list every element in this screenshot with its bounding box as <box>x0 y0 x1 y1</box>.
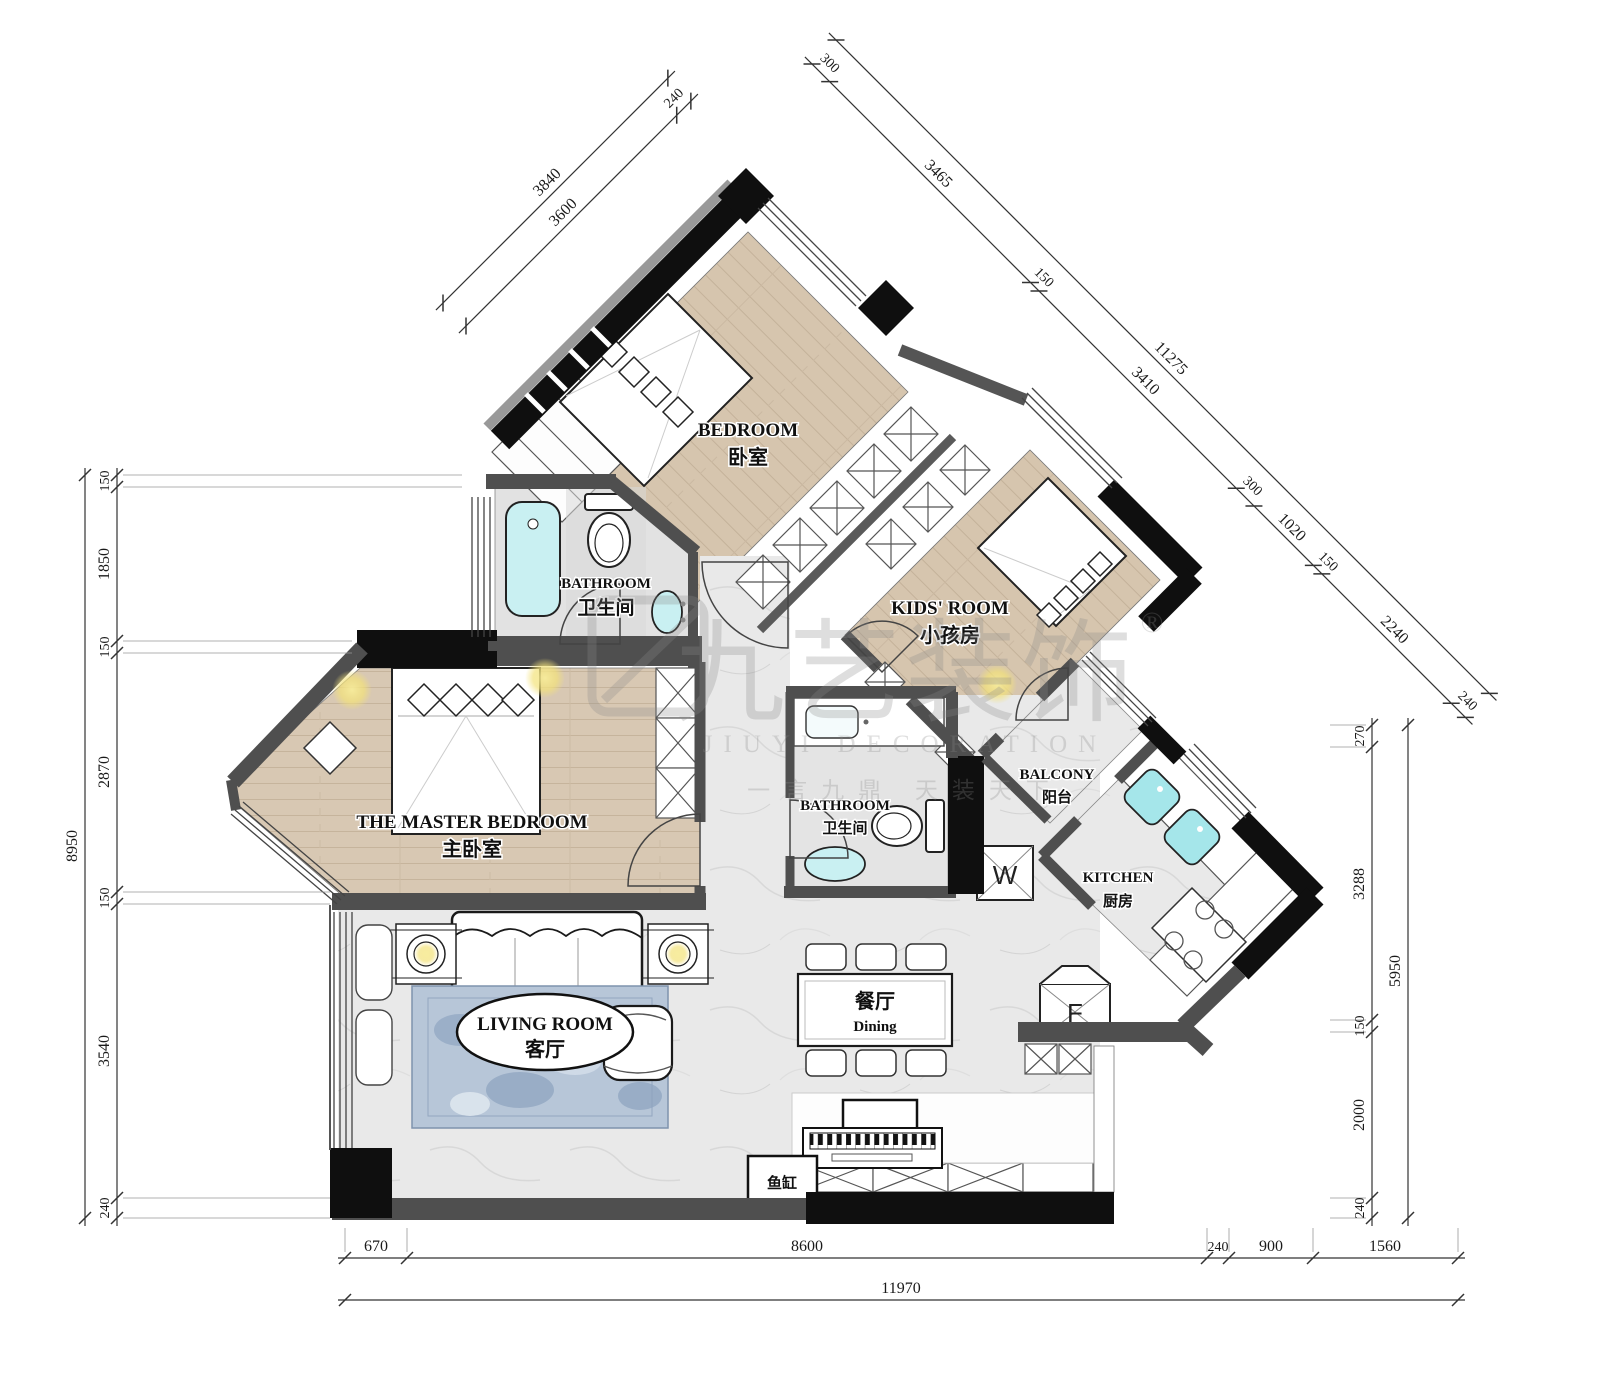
dim-label: 2870 <box>96 756 113 788</box>
toilet-top <box>585 494 633 567</box>
watermark-brand: 九艺装饰 <box>673 613 1137 737</box>
floor-plan-canvas: BEDROOM 卧室 KIDS' ROOM 小孩房 BATHROOM 卫生间 T… <box>0 0 1600 1383</box>
dim-right-inner: 270 3288 150 2000 240 <box>1330 718 1378 1226</box>
dim-label: 150 <box>98 888 113 909</box>
dim-label: 2240 <box>1377 613 1412 648</box>
dim-label: 150 <box>98 637 113 658</box>
watermark-latin: JIUYI DECORATION <box>703 731 1107 758</box>
dim-label: 1850 <box>96 548 113 580</box>
wall-west-black <box>330 1148 392 1218</box>
wall-bedroom-to-kids <box>900 350 1026 400</box>
dim-label: 3465 <box>921 157 956 192</box>
wall-bedroom-ne-block <box>858 280 914 336</box>
light <box>332 670 372 710</box>
wall-bay-left <box>231 780 236 810</box>
dim-label: 270 <box>1353 726 1368 747</box>
dining-label-zh: 餐厅 <box>855 989 895 1013</box>
dim-ext-lines <box>1330 725 1366 1218</box>
living-label-en: LIVING ROOM <box>477 1014 613 1035</box>
master-label-en: THE MASTER BEDROOM <box>356 812 587 833</box>
washer-label: W <box>993 860 1018 890</box>
lamp-table-left <box>390 924 462 984</box>
kitchen-label-en: KITCHEN <box>1083 870 1154 886</box>
wall-master-top-black <box>357 630 497 668</box>
wall-bottom-black <box>806 1192 1114 1224</box>
watermark-registered: ® <box>1141 606 1164 639</box>
entry-gap <box>1094 1046 1114 1192</box>
dim-label: 150 <box>98 471 113 492</box>
wall-bath-top-n <box>486 474 616 489</box>
dim-label: 900 <box>1259 1238 1283 1255</box>
dim-label: 11275 <box>1151 339 1191 379</box>
wall-bathmain-s <box>784 886 956 898</box>
wall-entry-step <box>1188 1032 1208 1050</box>
lamp-table-right <box>642 924 714 984</box>
dim-label: 240 <box>1353 1198 1368 1219</box>
dim-label: 670 <box>364 1238 388 1255</box>
dim-label: 3540 <box>96 1035 113 1067</box>
dim-label: 240 <box>1208 1240 1229 1255</box>
piano <box>803 1128 942 1168</box>
master-bed <box>392 668 540 834</box>
living-label-zh: 客厅 <box>524 1037 565 1061</box>
dim-bottom-outer: 11970 <box>338 1280 1465 1306</box>
bathroom-top-label-en: BATHROOM <box>561 576 651 592</box>
dim-label: 3410 <box>1128 364 1163 399</box>
dim-right-outer: 5950 <box>1387 718 1414 1226</box>
kitchen-label-zh: 厨房 <box>1103 892 1133 910</box>
dim-label: 3600 <box>546 195 581 230</box>
master-label-zh: 主卧室 <box>442 837 502 861</box>
watermark-slogan: 一言九鼎 天装天下 <box>747 778 1063 803</box>
dim-label: 240 <box>662 86 687 111</box>
dim-label: 3288 <box>1351 868 1368 900</box>
bathtub <box>506 502 560 616</box>
dim-bottom-inner: 670 8600 240 900 1560 <box>338 1228 1465 1264</box>
dim-label: 8950 <box>64 830 81 862</box>
fridge-label: F <box>1067 998 1083 1028</box>
tv <box>843 1100 917 1130</box>
dim-label: 1020 <box>1274 510 1309 545</box>
wall-entry-n <box>1018 1022 1190 1042</box>
bathroom-main-label-zh: 卫生间 <box>822 819 867 837</box>
light <box>525 658 565 698</box>
dim-label: 5950 <box>1387 955 1404 987</box>
bedroom-label-zh: 卧室 <box>728 445 768 469</box>
dim-label: 240 <box>98 1198 113 1219</box>
dim-label: 150 <box>1353 1016 1368 1037</box>
dim-label: 1560 <box>1369 1238 1401 1255</box>
wall-bottom-gray <box>332 1198 808 1220</box>
dim-ext-lines <box>345 1228 1458 1252</box>
bedroom-label-en: BEDROOM <box>698 420 798 441</box>
dim-left-outer: 8950 <box>64 468 91 1226</box>
dim-label: 8600 <box>791 1238 823 1255</box>
dim-label: 11970 <box>881 1280 920 1297</box>
sofa <box>452 912 642 998</box>
fish-tank-label: 鱼缸 <box>767 1174 797 1192</box>
dim-label: 3840 <box>530 165 565 200</box>
dim-label: 2000 <box>1351 1099 1368 1131</box>
wall-living-top <box>332 893 706 910</box>
dining-label-en: Dining <box>853 1019 897 1035</box>
foot-bath <box>805 847 865 881</box>
bathroom-west-window <box>472 497 490 637</box>
wall-bathmain-e-black <box>948 756 984 894</box>
